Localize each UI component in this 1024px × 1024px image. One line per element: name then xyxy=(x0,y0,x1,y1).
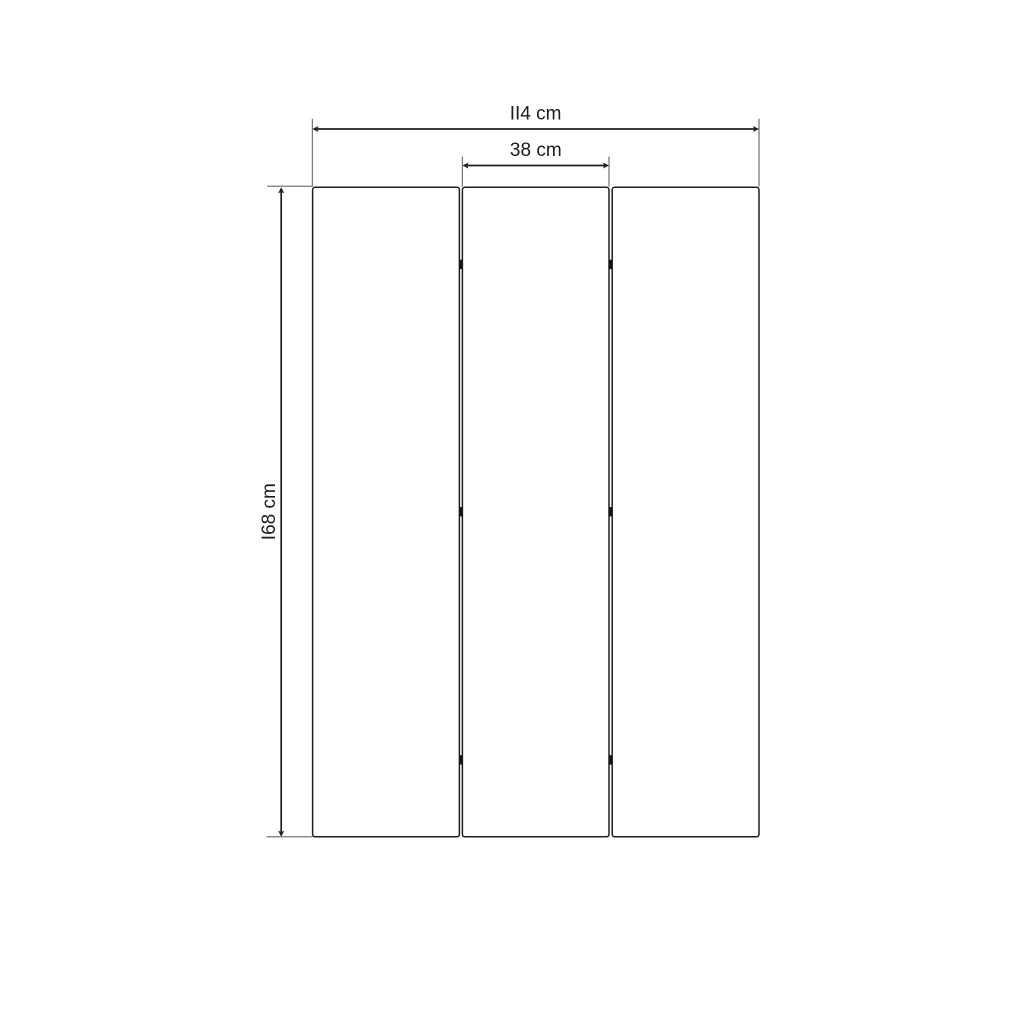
svg-text:II4 cm: II4 cm xyxy=(510,104,562,125)
svg-text:I68 cm: I68 cm xyxy=(259,483,280,540)
svg-text:38 cm: 38 cm xyxy=(510,140,562,161)
